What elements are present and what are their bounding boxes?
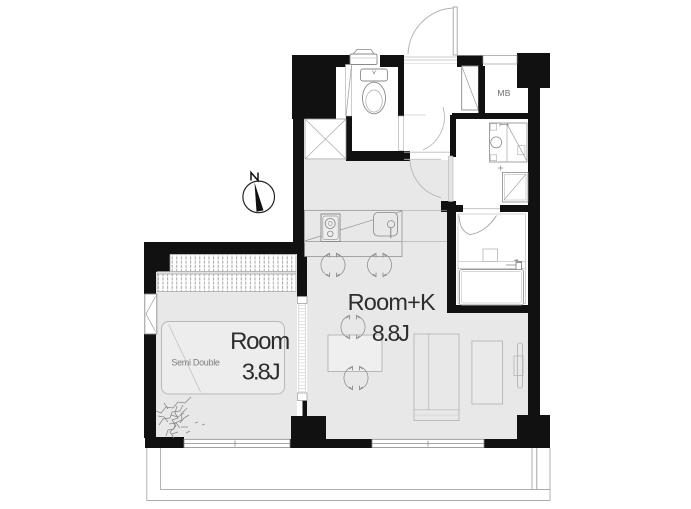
svg-text:3.8J: 3.8J (242, 359, 279, 385)
svg-text:8.8J: 8.8J (372, 320, 409, 346)
svg-text:Room+K: Room+K (348, 289, 436, 315)
svg-text:MB: MB (497, 88, 510, 98)
svg-text:Room: Room (230, 328, 289, 355)
svg-text:Semi Double: Semi Double (171, 358, 220, 368)
